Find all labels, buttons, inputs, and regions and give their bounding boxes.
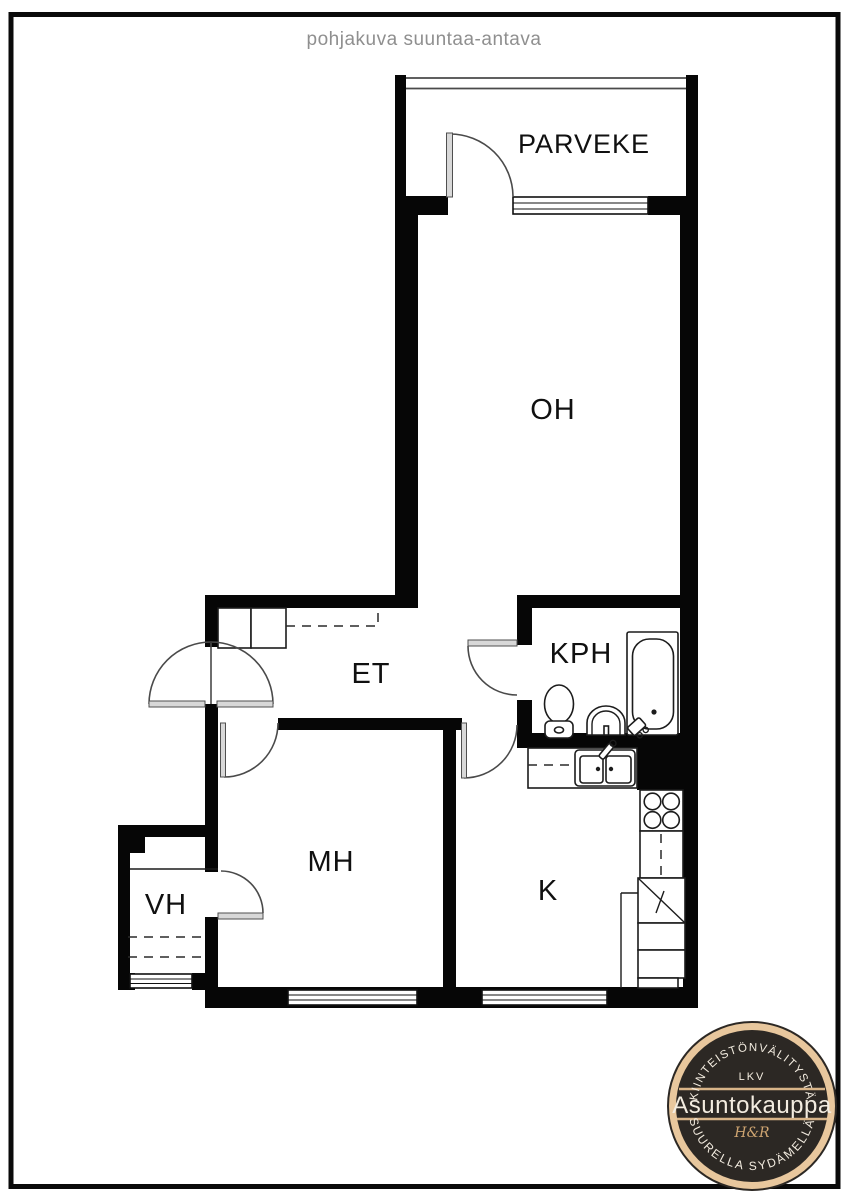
page-title: pohjakuva suuntaa-antava xyxy=(307,29,542,50)
logo-monogram: H&R xyxy=(733,1125,770,1141)
kitchen-cabinet xyxy=(640,831,683,878)
bathtub-icon xyxy=(627,632,678,735)
label-oh: OH xyxy=(530,394,576,426)
label-vh: VH xyxy=(145,889,187,921)
agency-logo-badge: KIINTEISTÖNVÄLITYSTÄ LKV Asuntokauppa H&… xyxy=(668,1022,836,1190)
wall-balcony-bottom-right xyxy=(648,196,698,215)
wall-balcony-right xyxy=(686,75,698,215)
walls xyxy=(118,75,698,1008)
kph-door xyxy=(468,640,517,695)
balcony-door xyxy=(447,133,514,197)
stove-icon xyxy=(640,790,683,831)
wall-kph-top xyxy=(517,595,698,608)
vh-door xyxy=(218,871,263,919)
page-border-frame xyxy=(11,15,838,1187)
label-mh: MH xyxy=(307,846,354,878)
k-door xyxy=(462,723,518,778)
mh-window xyxy=(288,990,417,1005)
label-et: ET xyxy=(351,658,390,690)
fridge-icon xyxy=(638,878,685,923)
floor-plan-page: pohjakuva suuntaa-antava xyxy=(0,0,849,1200)
wall-balcony-left xyxy=(395,75,406,215)
logo-name-text: Asuntokauppa xyxy=(672,1092,832,1119)
wall-mh-k xyxy=(443,718,456,1008)
wall-balcony-bottom-left xyxy=(395,196,448,215)
k-window xyxy=(482,990,607,1005)
wall-left-a xyxy=(205,595,218,647)
logo-lkv-text: LKV xyxy=(739,1071,766,1083)
label-parveke: PARVEKE xyxy=(518,129,650,159)
wall-et-mh xyxy=(278,718,462,730)
entrance-door xyxy=(149,642,273,707)
wall-bottom xyxy=(205,987,698,1008)
wall-kph-left-a xyxy=(517,608,532,645)
toilet-icon xyxy=(545,685,574,738)
bathroom-sink-icon xyxy=(587,706,625,735)
vh-window xyxy=(130,974,192,988)
wall-left-b xyxy=(205,704,218,872)
balcony-railing xyxy=(406,78,686,89)
label-kph: KPH xyxy=(550,638,613,670)
wall-oh-left xyxy=(395,215,418,608)
wall-vh-left xyxy=(118,825,130,990)
wall-vh-bottom-right xyxy=(192,973,218,990)
wall-et-top xyxy=(205,595,418,608)
wall-right-upper xyxy=(680,215,698,748)
wall-kitchen-block xyxy=(637,748,698,790)
mh-door xyxy=(221,723,279,777)
balcony-window xyxy=(513,197,648,214)
wall-kph-left-b xyxy=(517,700,532,733)
label-k: K xyxy=(538,875,558,907)
et-wardrobe xyxy=(218,608,378,648)
